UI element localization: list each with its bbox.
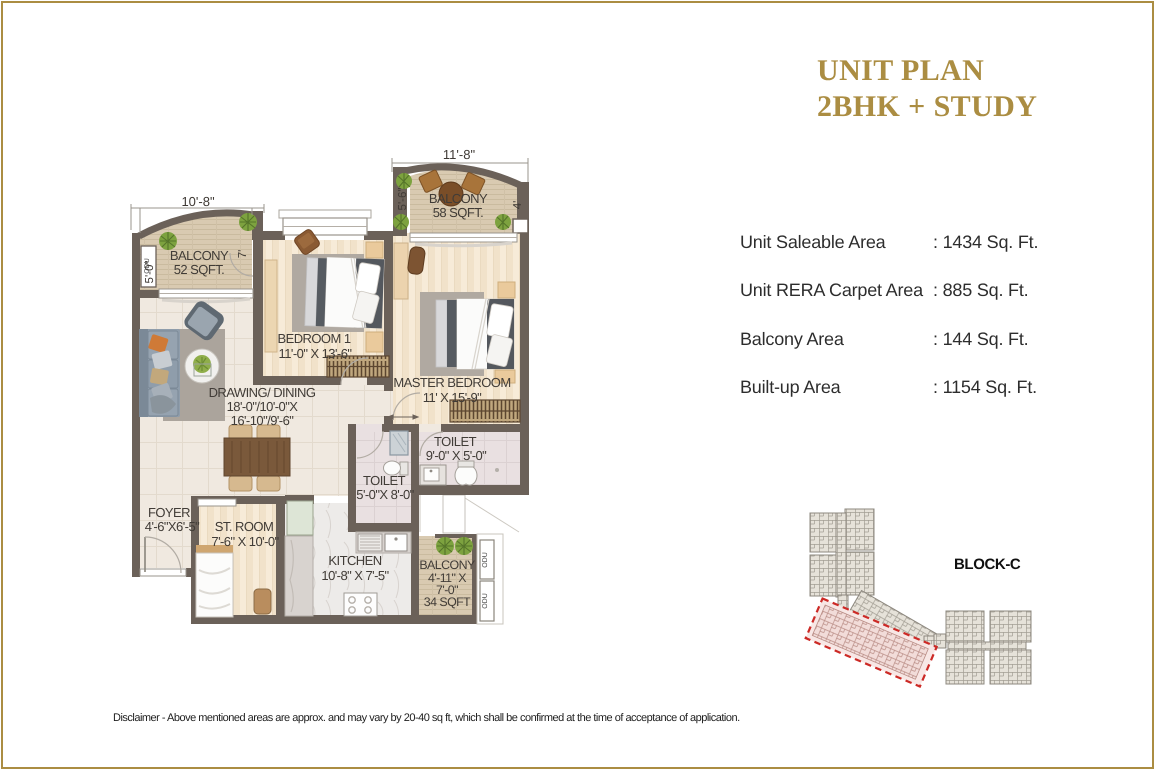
- svg-text:TOILET: TOILET: [434, 434, 477, 449]
- svg-text:ST. ROOM: ST. ROOM: [215, 519, 273, 534]
- svg-text:BALCONY: BALCONY: [419, 558, 475, 572]
- svg-text:BALCONY: BALCONY: [170, 248, 229, 263]
- svg-text:4': 4': [512, 201, 524, 210]
- svg-text:18'-0"/10'-0"X: 18'-0"/10'-0"X: [227, 399, 299, 414]
- svg-text:FOYER: FOYER: [148, 505, 190, 520]
- svg-text:ODU: ODU: [482, 593, 489, 609]
- svg-text:BALCONY: BALCONY: [429, 191, 488, 206]
- svg-text:ODU: ODU: [482, 552, 489, 568]
- svg-text:58 SQFT.: 58 SQFT.: [433, 205, 484, 220]
- svg-text:KITCHEN: KITCHEN: [328, 553, 381, 568]
- svg-text:10'-8": 10'-8": [181, 194, 215, 209]
- svg-text:11'-8": 11'-8": [443, 147, 476, 162]
- svg-text:TOILET: TOILET: [363, 473, 406, 488]
- svg-text:DRAWING/ DINING: DRAWING/ DINING: [209, 385, 316, 400]
- svg-text:4'-6"X6'-5": 4'-6"X6'-5": [145, 519, 200, 534]
- svg-text:5'-0": 5'-0": [144, 261, 156, 284]
- svg-text:MASTER BEDROOM: MASTER BEDROOM: [393, 375, 510, 390]
- svg-text:7': 7': [237, 250, 249, 259]
- svg-text:52 SQFT.: 52 SQFT.: [174, 262, 225, 277]
- svg-text:10'-8" X 7'-5": 10'-8" X 7'-5": [321, 568, 389, 583]
- svg-text:11' X 15'-9": 11' X 15'-9": [423, 390, 482, 405]
- svg-text:5'-6": 5'-6": [397, 188, 409, 211]
- svg-text:5'-0"X 8'-0": 5'-0"X 8'-0": [356, 487, 414, 502]
- svg-text:11'-0" X 13'-6": 11'-0" X 13'-6": [279, 346, 353, 361]
- svg-text:BEDROOM 1: BEDROOM 1: [277, 331, 350, 346]
- svg-text:7'-6" X 10'-0": 7'-6" X 10'-0": [211, 534, 279, 549]
- svg-text:34 SQFT: 34 SQFT: [424, 595, 471, 609]
- svg-text:16'-10"/9'-6": 16'-10"/9'-6": [231, 413, 295, 428]
- svg-text:9'-0" X 5'-0": 9'-0" X 5'-0": [426, 448, 487, 463]
